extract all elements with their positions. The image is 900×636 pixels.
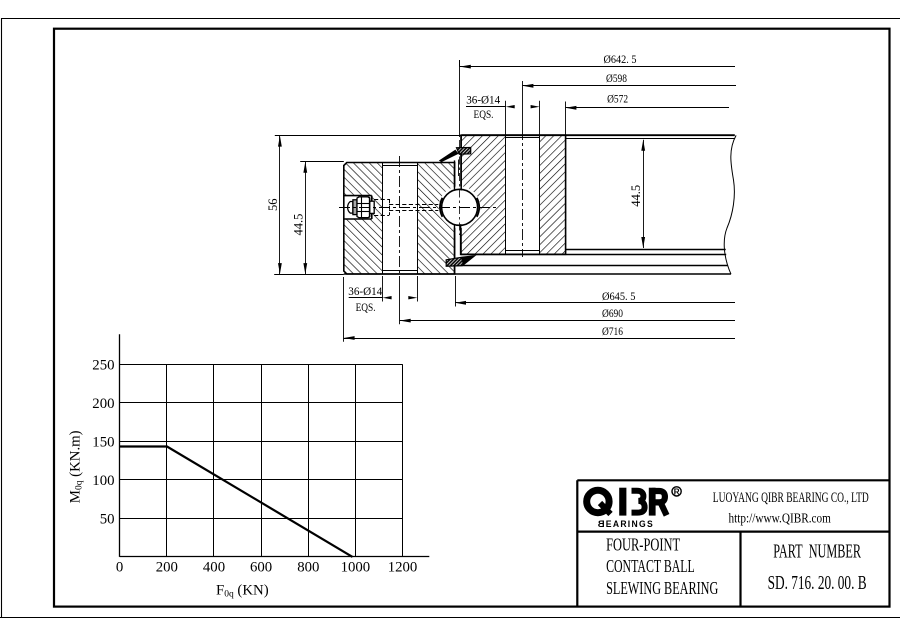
svg-text:600: 600 bbox=[250, 560, 272, 576]
svg-text:SD. 716. 20. 00. B: SD. 716. 20. 00. B bbox=[768, 573, 867, 594]
svg-text:EQS.: EQS. bbox=[474, 109, 494, 121]
svg-text:50: 50 bbox=[100, 512, 115, 528]
svg-text:R: R bbox=[674, 488, 680, 497]
svg-text:CONTACT BALL: CONTACT BALL bbox=[606, 556, 695, 576]
svg-text:44.5: 44.5 bbox=[291, 214, 305, 236]
svg-text:EQS.: EQS. bbox=[356, 302, 376, 314]
svg-text:F0q (KN): F0q (KN) bbox=[216, 583, 269, 600]
svg-text:Ø716: Ø716 bbox=[602, 324, 623, 338]
svg-text:Ø572: Ø572 bbox=[607, 92, 628, 106]
svg-text:LUOYANG QIBR BEARING CO., LTD: LUOYANG QIBR BEARING CO., LTD bbox=[713, 490, 869, 506]
svg-text:400: 400 bbox=[203, 560, 225, 576]
svg-text:B: B bbox=[598, 519, 605, 530]
svg-text:EARINGS: EARINGS bbox=[606, 519, 654, 530]
svg-text:PART NUMBER: PART NUMBER bbox=[773, 540, 861, 562]
svg-text:200: 200 bbox=[156, 560, 178, 576]
svg-text:M0q (KN.m): M0q (KN.m) bbox=[68, 430, 85, 503]
svg-text:http://www.QIBR.com: http://www.QIBR.com bbox=[729, 510, 832, 525]
svg-text:0: 0 bbox=[116, 560, 123, 576]
svg-text:Ø645. 5: Ø645. 5 bbox=[602, 289, 636, 303]
svg-text:36-Ø14: 36-Ø14 bbox=[348, 286, 382, 298]
svg-text:SLEWING BEARING: SLEWING BEARING bbox=[606, 578, 718, 598]
svg-text:Ø642. 5: Ø642. 5 bbox=[604, 52, 637, 66]
svg-text:36-Ø14: 36-Ø14 bbox=[466, 94, 500, 106]
svg-text:100: 100 bbox=[92, 473, 114, 489]
svg-text:Ø690: Ø690 bbox=[602, 306, 623, 320]
svg-text:Ø598: Ø598 bbox=[606, 71, 627, 85]
svg-text:1200: 1200 bbox=[388, 560, 418, 576]
svg-text:56: 56 bbox=[266, 199, 280, 212]
svg-text:FOUR-POINT: FOUR-POINT bbox=[606, 535, 680, 555]
svg-text:800: 800 bbox=[297, 560, 319, 576]
svg-text:44.5: 44.5 bbox=[629, 185, 643, 207]
svg-text:250: 250 bbox=[92, 357, 114, 373]
svg-text:1000: 1000 bbox=[341, 560, 371, 576]
svg-text:200: 200 bbox=[92, 396, 114, 412]
svg-text:150: 150 bbox=[92, 434, 114, 450]
